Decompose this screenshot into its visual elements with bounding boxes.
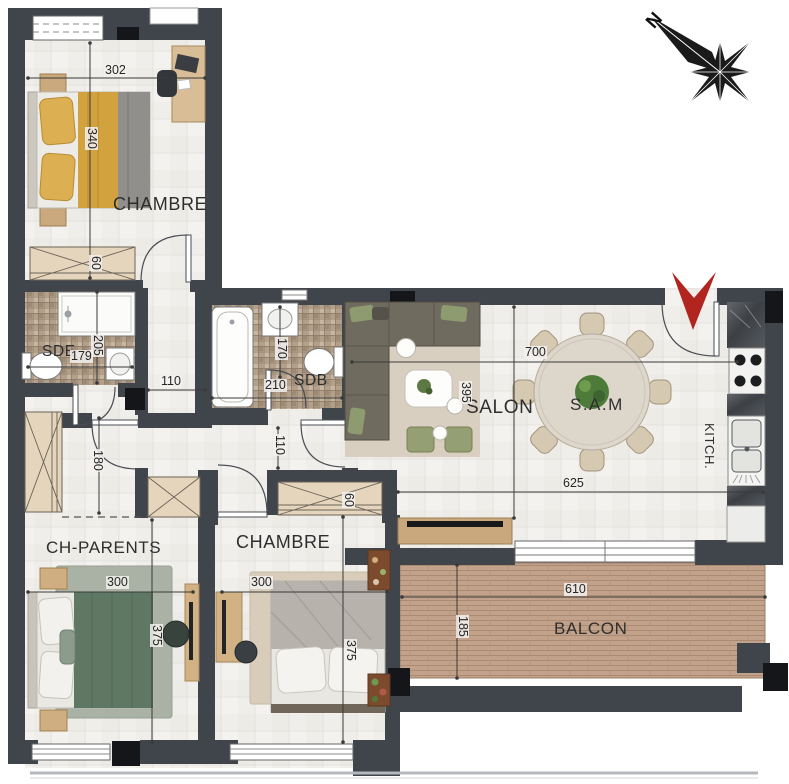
dim-chambre2-width: 300	[250, 576, 273, 589]
compass-rose	[650, 16, 750, 102]
duvet-gray	[271, 581, 385, 649]
cushion-green	[440, 305, 467, 323]
dim-hall-depth: 180	[92, 449, 105, 472]
dim-balcon-width: 610	[564, 583, 587, 596]
chambre2-window	[230, 744, 353, 760]
bathtub	[212, 307, 253, 407]
floor-plan-drawing	[0, 0, 789, 784]
duvet-green	[74, 592, 153, 708]
floor-plan: N CHAMBRE SDE SDB SALON S.A.M KITCH. CH-…	[0, 0, 789, 784]
room-label-sam: S.A.M	[570, 396, 624, 413]
stove	[729, 348, 765, 394]
kitchen-sink	[728, 416, 765, 486]
pouf	[407, 427, 434, 452]
dim-living-width: 700	[524, 346, 547, 359]
cushion-dark	[372, 307, 389, 320]
dim-sde-width: 179	[70, 350, 93, 363]
nightstand	[40, 206, 66, 226]
dim-closet-chambre1: 60	[90, 255, 103, 271]
dim-sdb-width: 210	[264, 379, 287, 392]
dim-sdb-depth: 170	[276, 337, 289, 360]
room-label-chambre1: CHAMBRE	[113, 195, 207, 213]
bed-headboard	[28, 592, 37, 708]
chambre2-closet	[278, 482, 382, 515]
throw-gray	[118, 92, 150, 208]
monitor	[189, 602, 193, 660]
room-label-salon: SALON	[466, 398, 533, 417]
dim-closet-chambre2: 60	[343, 492, 356, 508]
wall-niche	[150, 8, 198, 24]
kitchen-cabinet	[727, 506, 765, 542]
dining-furniture	[513, 313, 671, 471]
dim-sde-depth: 205	[92, 334, 105, 357]
nightstand	[40, 568, 67, 589]
stool	[235, 641, 257, 663]
monitor	[222, 600, 226, 654]
dim-living-depth: 395	[460, 381, 473, 404]
dim-parents-depth: 375	[151, 624, 164, 647]
bed-headboard	[28, 92, 37, 208]
chambre1-window	[33, 16, 103, 40]
parents-window	[32, 744, 110, 760]
hall-closet	[25, 412, 62, 512]
nightstand	[40, 74, 66, 94]
sdb-window	[282, 290, 307, 300]
pouf	[445, 427, 472, 452]
desk-chair	[157, 70, 177, 97]
dim-hall-width: 110	[160, 375, 182, 388]
dim-corridor-width: 110	[274, 434, 287, 456]
dim-dining-width: 625	[562, 477, 585, 490]
dim-chambre2-depth: 375	[345, 639, 358, 662]
dim-chambre1-width: 302	[104, 64, 127, 77]
kitchen-fixtures	[727, 302, 765, 542]
desk-chair	[163, 621, 189, 647]
plant-stand	[368, 674, 390, 706]
sde-sink	[106, 348, 134, 380]
room-label-balcon: BALCON	[554, 620, 628, 637]
pillow	[276, 646, 327, 693]
dim-parents-width: 300	[106, 576, 129, 589]
dim-balcon-depth: 185	[457, 615, 470, 638]
pillow	[39, 97, 76, 146]
dim-chambre1-depth: 340	[86, 127, 99, 150]
room-label-chambre2: CHAMBRE	[236, 533, 330, 551]
tv	[407, 521, 503, 527]
side-table	[397, 339, 416, 358]
shelf-unit	[368, 550, 390, 590]
papers	[178, 79, 191, 90]
small-pillow	[60, 630, 75, 664]
parents-closet	[148, 477, 200, 517]
balcony-sliding-door	[515, 541, 695, 562]
room-label-kitchen: KITCH.	[703, 423, 716, 469]
nightstand	[40, 710, 67, 731]
room-label-ch-parents: CH-PARENTS	[46, 539, 161, 556]
chambre1-closet	[30, 247, 135, 280]
room-label-sdb: SDB	[294, 373, 328, 389]
pillow	[39, 153, 75, 201]
